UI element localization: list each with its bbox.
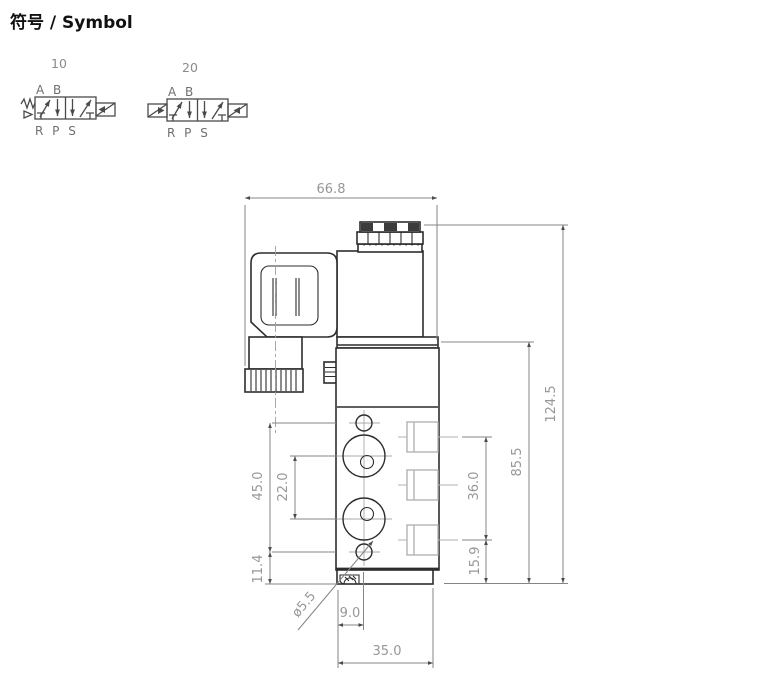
solenoid-coil-body [337,251,423,337]
dim-body-height: 85.5 [441,342,534,583]
dim-port-span: 36.0 [462,437,492,540]
symbol-10-top-ports: A B [36,83,64,97]
dim-hole-span: 45.0 [251,423,336,552]
symbol-20-label: 20 [182,60,198,75]
symbol-valve-10: 10 A B R P S [21,56,115,138]
svg-text:11.4: 11.4 [251,555,266,584]
pilot-icon [24,111,32,118]
valve-front-view [245,222,458,584]
side-tab [324,362,337,383]
svg-text:36.0: 36.0 [467,472,482,501]
svg-text:22.0: 22.0 [276,473,291,502]
side-fittings [398,422,458,555]
svg-text:35.0: 35.0 [373,644,402,659]
svg-text:45.0: 45.0 [251,472,266,501]
interface-plate [337,337,438,348]
symbol-20-top-ports: A B [168,85,196,99]
symbol-10-bottom-ports: R P S [35,124,78,138]
solenoid-icon [96,103,115,116]
svg-text:124.5: 124.5 [544,385,559,422]
symbol-20-bottom-ports: R P S [167,126,210,140]
svg-text:ø5.5: ø5.5 [289,589,319,621]
symbol-10-label: 10 [51,56,67,71]
dim-outlet-span: 22.0 [276,456,337,519]
dim-hole-offset-bottom: 11.4 [251,552,336,584]
solenoid-icon [228,104,247,117]
svg-text:15.9: 15.9 [468,547,483,576]
svg-text:66.8: 66.8 [317,182,346,197]
dim-port-offset-bottom: 15.9 [468,540,486,583]
din-connector [245,246,337,433]
dim-hole-offset-side: 9.0 [338,572,364,668]
svg-text:9.0: 9.0 [340,606,361,621]
solenoid-icon [148,104,167,117]
connector-knurl-ring [245,369,303,392]
spring-return-icon [21,99,35,108]
dim-overall-height: 124.5 [424,225,568,584]
bottom-flange [337,570,433,584]
drawing-page: 符号 / Symbol 10 A B [0,0,762,692]
technical-drawing-canvas: 10 A B R P S 20 A B [0,0,762,692]
manual-override-nut [357,222,423,252]
svg-text:85.5: 85.5 [510,448,525,477]
dim-base-width: 35.0 [338,588,433,668]
symbol-valve-20: 20 A B R P S [148,60,247,140]
